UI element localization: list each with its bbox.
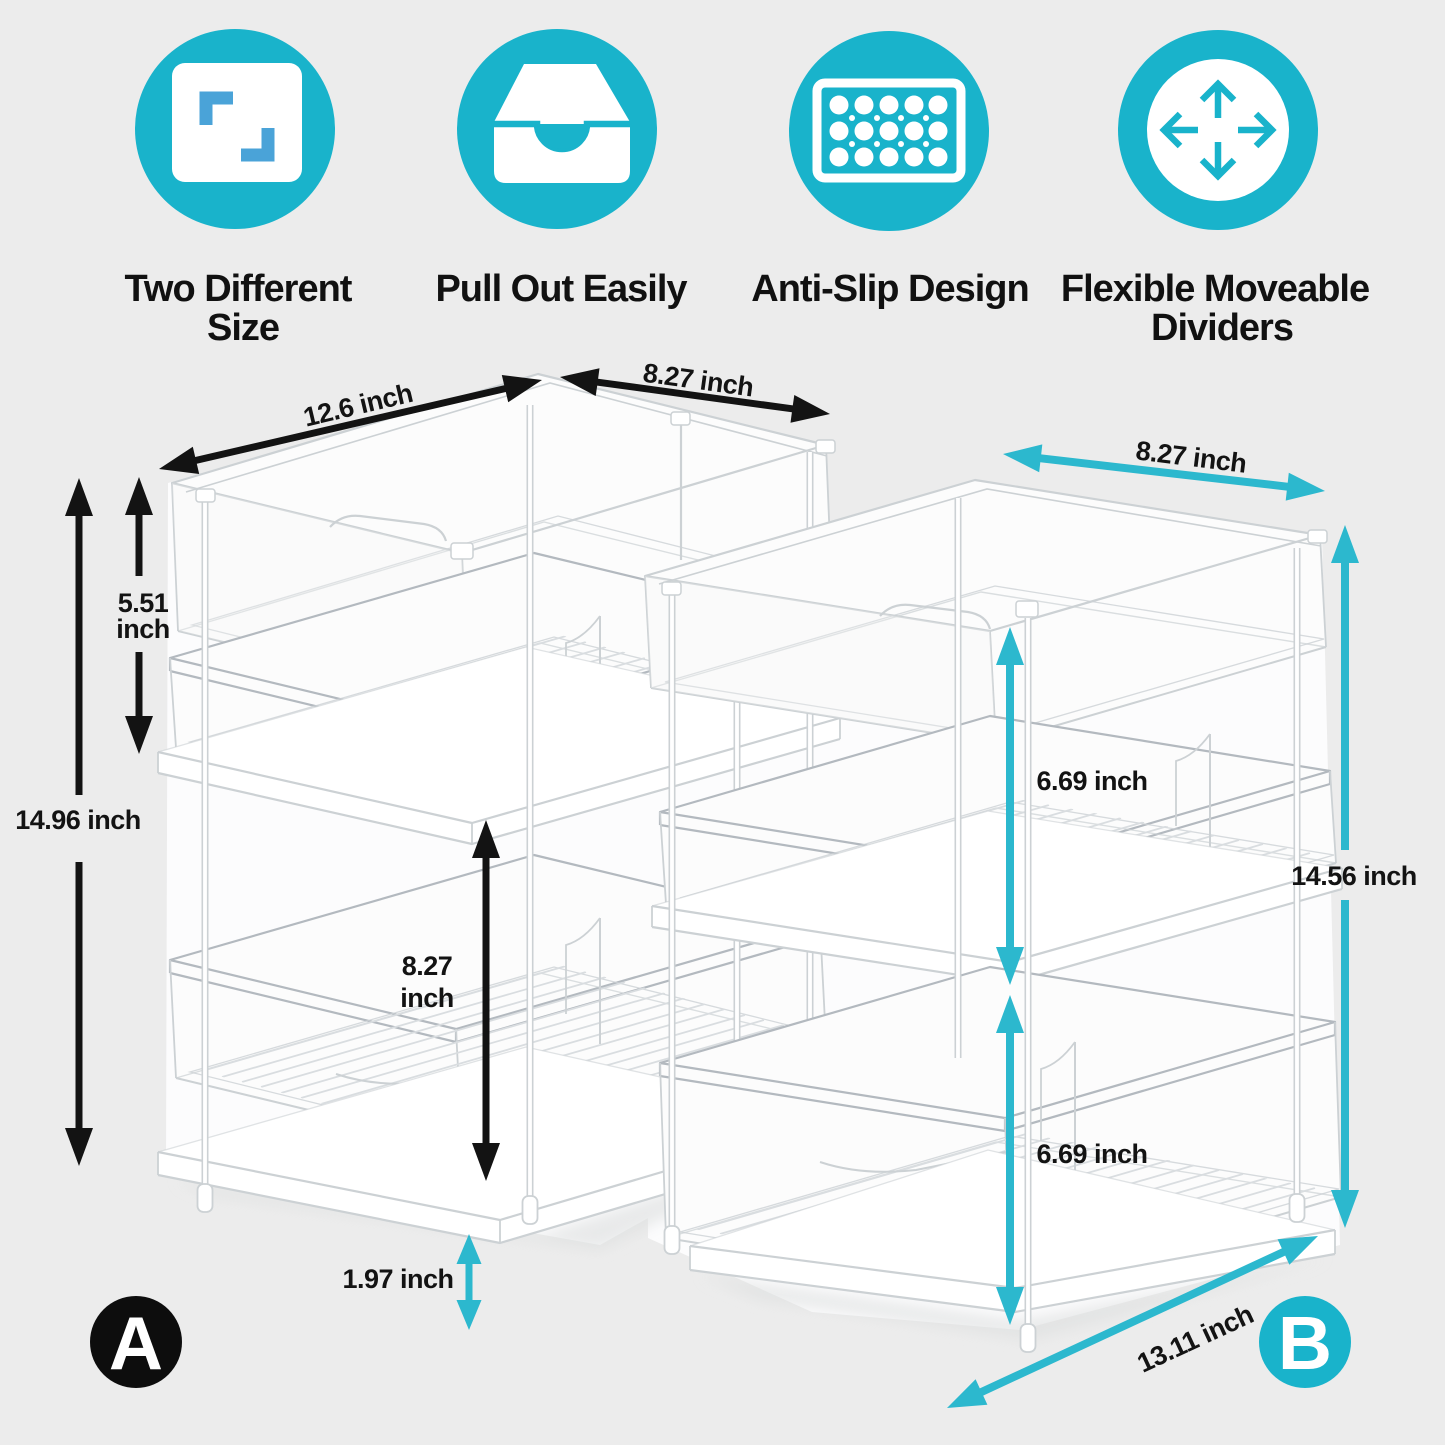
- svg-text:inch: inch: [400, 983, 454, 1013]
- svg-text:Anti-Slip Design: Anti-Slip Design: [751, 268, 1028, 310]
- svg-text:1.97 inch: 1.97 inch: [342, 1264, 453, 1294]
- svg-text:A: A: [109, 1301, 163, 1385]
- svg-text:inch: inch: [116, 614, 170, 644]
- svg-text:Pull Out Easily: Pull Out Easily: [435, 268, 687, 310]
- svg-text:Two Different: Two Different: [125, 268, 353, 310]
- svg-text:14.56 inch: 14.56 inch: [1291, 861, 1417, 891]
- svg-text:6.69 inch: 6.69 inch: [1036, 1139, 1147, 1169]
- svg-text:Dividers: Dividers: [1151, 307, 1293, 349]
- svg-text:6.69 inch: 6.69 inch: [1036, 766, 1147, 796]
- svg-text:Size: Size: [207, 307, 279, 349]
- svg-text:8.27: 8.27: [402, 951, 453, 981]
- svg-text:Flexible Moveable: Flexible Moveable: [1061, 268, 1369, 310]
- svg-text:B: B: [1278, 1301, 1332, 1385]
- svg-text:14.96 inch: 14.96 inch: [15, 805, 141, 835]
